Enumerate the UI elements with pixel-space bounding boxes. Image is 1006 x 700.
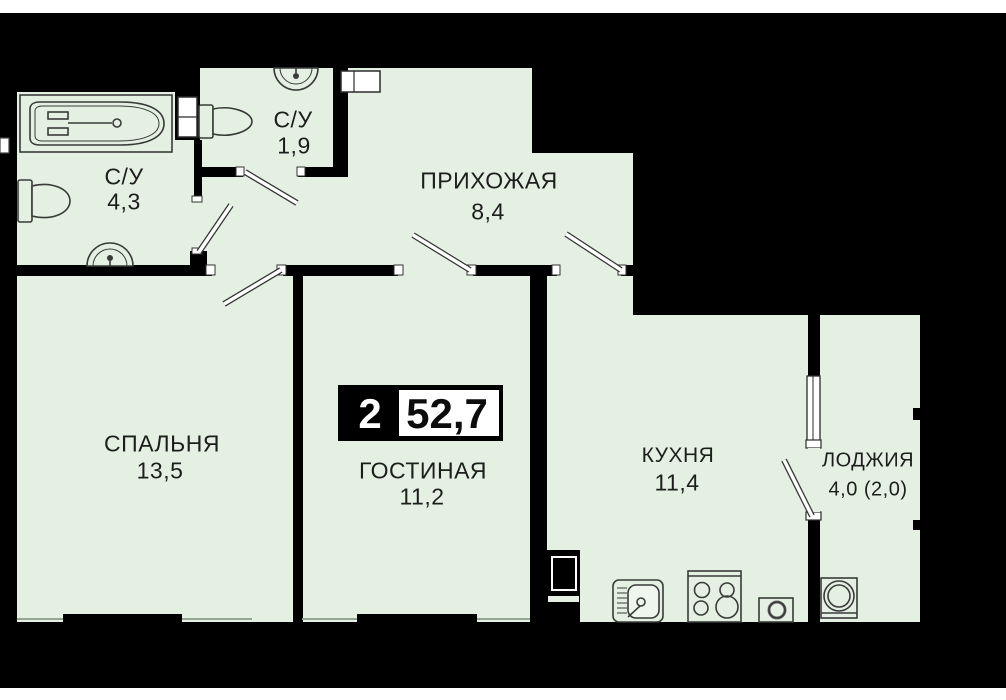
apartment-floor <box>17 68 920 622</box>
floor-plan-drawing <box>0 0 1006 700</box>
stove-icon <box>688 571 741 622</box>
oven-icon <box>759 598 793 622</box>
floor-plan-page: С/У 4,3 С/У 1,9 ПРИХОЖАЯ 8,4 СПАЛЬНЯ 13,… <box>0 0 1006 700</box>
kitchen-duct-icon <box>547 550 580 622</box>
kitchen-sink-icon <box>613 580 663 622</box>
loggia-window <box>806 376 821 520</box>
area-badge <box>338 385 503 441</box>
